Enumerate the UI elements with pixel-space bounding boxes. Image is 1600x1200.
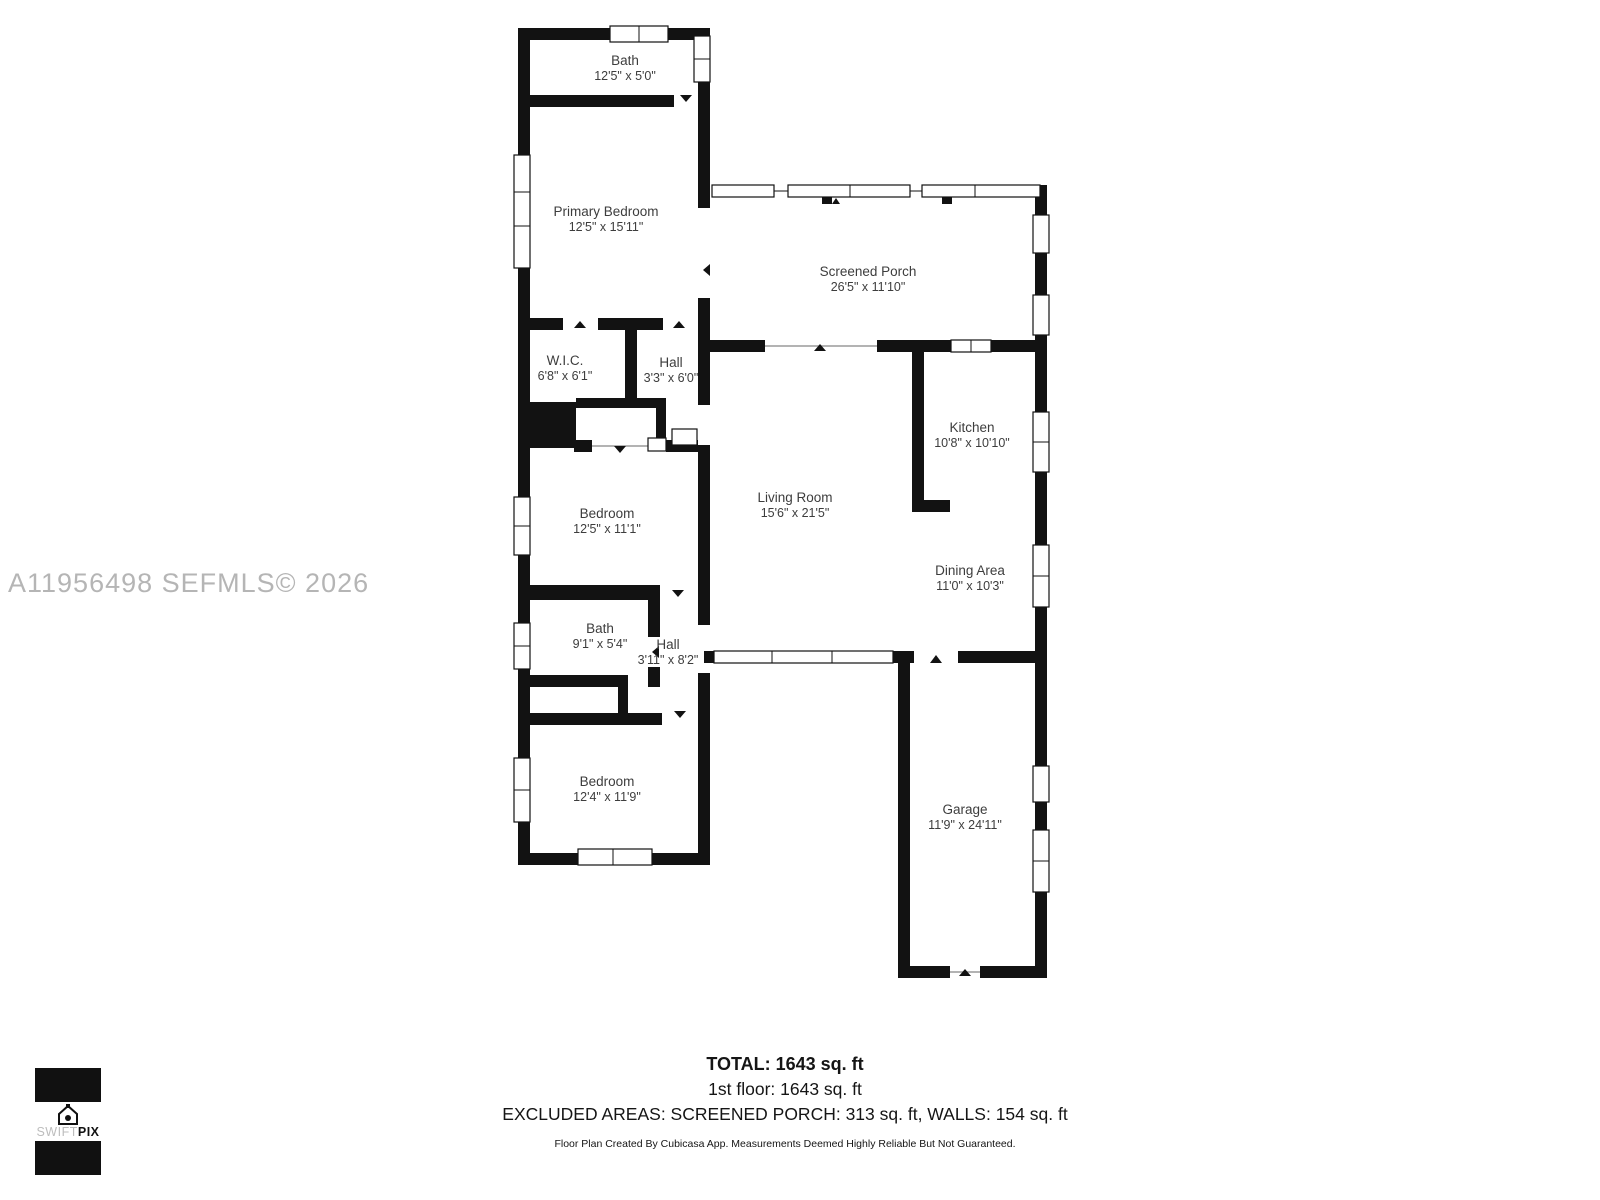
room-name-hall-top: Hall <box>659 355 682 370</box>
room-dims-bedroom-bottom: 12'4" x 11'9" <box>573 790 641 804</box>
room-name-bath-lower: Bath <box>586 621 614 636</box>
room-name-screened-porch: Screened Porch <box>820 264 917 279</box>
room-dims-garage: 11'9" x 24'11" <box>928 818 1002 832</box>
room-dims-hall-top: 3'3" x 6'0" <box>644 371 699 385</box>
area-summary: TOTAL: 1643 sq. ft 1st floor: 1643 sq. f… <box>0 1054 1570 1150</box>
room-name-bath-top: Bath <box>611 53 639 68</box>
room-dims-bath-top: 12'5" x 5'0" <box>594 69 656 83</box>
room-dims-primary-bedroom: 12'5" x 15'11" <box>569 220 644 234</box>
room-name-hall-lower: Hall <box>656 637 679 652</box>
room-dims-bedroom-middle: 12'5" x 11'1" <box>573 522 641 536</box>
room-dims-bath-lower: 9'1" x 5'4" <box>573 637 628 651</box>
room-dims-screened-porch: 26'5" x 11'10" <box>831 280 906 294</box>
house-camera-icon <box>55 1103 81 1126</box>
logo-bottom-block <box>35 1141 101 1175</box>
room-dims-wic: 6'8" x 6'1" <box>538 369 593 383</box>
excluded-areas-text: EXCLUDED AREAS: SCREENED PORCH: 313 sq. … <box>0 1104 1570 1125</box>
logo-text-light: SWIFT <box>36 1125 77 1139</box>
room-name-kitchen: Kitchen <box>949 420 994 435</box>
room-name-dining-area: Dining Area <box>935 563 1005 578</box>
room-dims-living-room: 15'6" x 21'5" <box>761 506 830 520</box>
mls-watermark: A11956498 SEFMLS© 2026 <box>8 568 369 599</box>
room-name-bedroom-bottom: Bedroom <box>580 774 635 789</box>
room-dims-kitchen: 10'8" x 10'10" <box>934 436 1010 450</box>
room-name-wic: W.I.C. <box>547 353 584 368</box>
room-dims-hall-lower: 3'11" x 8'2" <box>638 653 699 667</box>
logo-top-block <box>35 1068 101 1102</box>
logo-wordmark: SWIFTPIX <box>36 1126 99 1139</box>
total-area-text: TOTAL: 1643 sq. ft <box>0 1054 1570 1075</box>
room-name-garage: Garage <box>942 802 987 817</box>
first-floor-text: 1st floor: 1643 sq. ft <box>0 1079 1570 1100</box>
room-name-primary-bedroom: Primary Bedroom <box>553 204 658 219</box>
logo-text-bold: PIX <box>78 1125 100 1139</box>
disclaimer-text: Floor Plan Created By Cubicasa App. Meas… <box>0 1138 1570 1150</box>
swiftpix-logo: SWIFTPIX <box>35 1068 101 1175</box>
room-dims-dining-area: 11'0" x 10'3" <box>936 579 1004 593</box>
floor-plan-svg: Bath 12'5" x 5'0" Primary Bedroom 12'5" … <box>0 0 1600 1200</box>
room-name-living-room: Living Room <box>757 490 832 505</box>
room-name-bedroom-middle: Bedroom <box>580 506 635 521</box>
